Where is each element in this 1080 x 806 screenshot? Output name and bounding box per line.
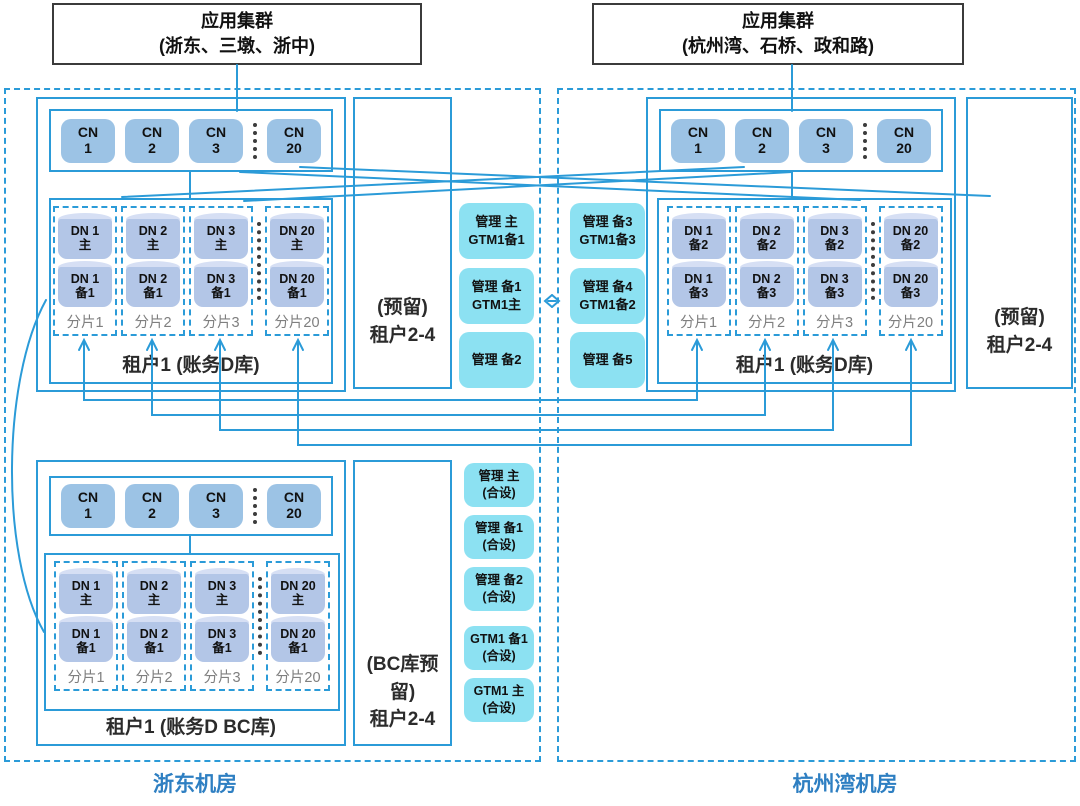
ellipsis-dots <box>253 488 257 524</box>
shard-group-2: DN 2主 DN 2备1 分片2 <box>121 206 185 336</box>
shard-group-2: DN 2备2 DN 2备3 分片2 <box>735 206 799 336</box>
shard-label: 分片3 <box>203 666 240 687</box>
dn-primary-node: DN 3主 <box>194 568 250 614</box>
dn-primary-node: DN 3主 <box>193 213 249 259</box>
reserved-box-upper-right: (预留) 租户2-4 <box>966 97 1073 389</box>
cn-row-upper-left: CN1 CN2 CN3 CN20 <box>49 109 333 172</box>
reserved-box-lower-left: (BC库预留) 租户2-4 <box>353 460 452 746</box>
shard-label: 分片3 <box>202 311 239 332</box>
cn-node-3: CN3 <box>189 119 243 163</box>
dn-primary-node: DN 20主 <box>269 213 325 259</box>
mgmt-node-backup4-gtm1b2: 管理 备4GTM1备2 <box>570 268 645 324</box>
ellipsis-dots <box>258 577 262 655</box>
dn-replica-node: DN 2备1 <box>125 261 181 307</box>
cn-node-2: CN2 <box>735 119 789 163</box>
dn-replica2-node: DN 3备2 <box>807 213 863 259</box>
app-cluster-right-title: 应用集群 <box>742 9 814 34</box>
shard-label: 分片2 <box>748 311 785 332</box>
ellipsis-dots <box>863 123 867 159</box>
ellipsis-dots <box>257 222 261 300</box>
dn-replica-node: DN 3备1 <box>194 616 250 662</box>
cn-node-1: CN1 <box>671 119 725 163</box>
mgmt-node-backup2: 管理 备2 <box>459 332 534 388</box>
tenant-label: 租户1 (账务D库) <box>51 350 331 377</box>
shard-group-20: DN 20主 DN 20备1 分片20 <box>266 561 330 691</box>
cn-node-20: CN20 <box>267 119 321 163</box>
dn-replica-node: DN 1备1 <box>57 261 113 307</box>
dn-replica3-node: DN 20备3 <box>883 261 939 307</box>
mgmt-node-primary-gtm1b1: 管理 主GTM1备1 <box>459 203 534 259</box>
dn-replica-node: DN 20备1 <box>270 616 326 662</box>
shard-group-1: DN 1主 DN 1备1 分片1 <box>53 206 117 336</box>
mgmt-node-backup2-colocated: 管理 备2(合设) <box>464 567 534 611</box>
dc-label-hangzhouwan: 杭州湾机房 <box>700 768 990 798</box>
arrow-left-icon <box>545 295 552 307</box>
tenant-box-upper-left: DN 1主 DN 1备1 分片1 DN 2主 DN 2备1 分片2 DN 3主 … <box>49 198 333 384</box>
shard-group-1: DN 1主 DN 1备1 分片1 <box>54 561 118 691</box>
architecture-diagram: 应用集群 (浙东、三墩、浙中) 应用集群 (杭州湾、石桥、政和路) CN1 CN… <box>0 0 1080 806</box>
mgmt-node-backup3-gtm1b3: 管理 备3GTM1备3 <box>570 203 645 259</box>
mgmt-node-primary-colocated: 管理 主(合设) <box>464 463 534 507</box>
dn-primary-node: DN 20主 <box>270 568 326 614</box>
reserved-box-upper-left: (预留) 租户2-4 <box>353 97 452 389</box>
shard-label: 分片1 <box>680 311 717 332</box>
ellipsis-dots <box>253 123 257 159</box>
cn-node-1: CN1 <box>61 484 115 528</box>
shard-group-1: DN 1备2 DN 1备3 分片1 <box>667 206 731 336</box>
shard-label: 分片2 <box>135 666 172 687</box>
cn-node-1: CN1 <box>61 119 115 163</box>
shard-group-2: DN 2主 DN 2备1 分片2 <box>122 561 186 691</box>
app-cluster-left-sites: (浙东、三墩、浙中) <box>159 34 315 59</box>
cn-node-20: CN20 <box>267 484 321 528</box>
shard-label: 分片20 <box>888 311 933 332</box>
shard-group-3: DN 3主 DN 3备1 分片3 <box>190 561 254 691</box>
cn-node-2: CN2 <box>125 484 179 528</box>
app-cluster-right-sites: (杭州湾、石桥、政和路) <box>682 34 874 59</box>
app-cluster-left: 应用集群 (浙东、三墩、浙中) <box>52 3 422 65</box>
shard-group-20: DN 20主 DN 20备1 分片20 <box>265 206 329 336</box>
tenant-box-upper-right: DN 1备2 DN 1备3 分片1 DN 2备2 DN 2备3 分片2 DN 3… <box>657 198 952 384</box>
shard-group-20: DN 20备2 DN 20备3 分片20 <box>879 206 943 336</box>
cn-node-3: CN3 <box>799 119 853 163</box>
mgmt-node-backup5: 管理 备5 <box>570 332 645 388</box>
shard-label: 分片20 <box>274 311 319 332</box>
cn-node-2: CN2 <box>125 119 179 163</box>
cn-node-20: CN20 <box>877 119 931 163</box>
mgmt-node-backup1-colocated: 管理 备1(合设) <box>464 515 534 559</box>
mgmt-node-backup1-gtm1primary: 管理 备1GTM1主 <box>459 268 534 324</box>
dn-primary-node: DN 1主 <box>58 568 114 614</box>
shard-group-3: DN 3主 DN 3备1 分片3 <box>189 206 253 336</box>
dn-replica2-node: DN 20备2 <box>883 213 939 259</box>
shard-label: 分片2 <box>134 311 171 332</box>
dn-replica-node: DN 3备1 <box>193 261 249 307</box>
dn-primary-node: DN 1主 <box>57 213 113 259</box>
shard-group-3: DN 3备2 DN 3备3 分片3 <box>803 206 867 336</box>
dn-box-lower-left: DN 1主 DN 1备1 分片1 DN 2主 DN 2备1 分片2 DN 3主 … <box>44 553 340 711</box>
shard-label: 分片3 <box>816 311 853 332</box>
cn-row-upper-right: CN1 CN2 CN3 CN20 <box>659 109 943 172</box>
dn-replica-node: DN 20备1 <box>269 261 325 307</box>
dc-label-zhedong: 浙东机房 <box>60 768 330 798</box>
dn-primary-node: DN 2主 <box>125 213 181 259</box>
tenant-label: 租户1 (账务D库) <box>659 350 950 377</box>
dn-replica-node: DN 2备1 <box>126 616 182 662</box>
shard-label: 分片1 <box>66 311 103 332</box>
dn-replica3-node: DN 3备3 <box>807 261 863 307</box>
cn-row-lower-left: CN1 CN2 CN3 CN20 <box>49 476 333 536</box>
dn-replica2-node: DN 2备2 <box>739 213 795 259</box>
app-cluster-right: 应用集群 (杭州湾、石桥、政和路) <box>592 3 964 65</box>
dn-primary-node: DN 2主 <box>126 568 182 614</box>
shard-label: 分片1 <box>67 666 104 687</box>
gtm1-primary-colocated: GTM1 主(合设) <box>464 678 534 722</box>
shard-label: 分片20 <box>275 666 320 687</box>
dn-replica3-node: DN 2备3 <box>739 261 795 307</box>
tenant-label: 租户1 (账务D BC库) <box>36 712 346 739</box>
dn-replica3-node: DN 1备3 <box>671 261 727 307</box>
dn-replica-node: DN 1备1 <box>58 616 114 662</box>
app-cluster-left-title: 应用集群 <box>201 9 273 34</box>
cn-node-3: CN3 <box>189 484 243 528</box>
dn-replica2-node: DN 1备2 <box>671 213 727 259</box>
gtm1-backup1-colocated: GTM1 备1(合设) <box>464 626 534 670</box>
ellipsis-dots <box>871 222 875 300</box>
